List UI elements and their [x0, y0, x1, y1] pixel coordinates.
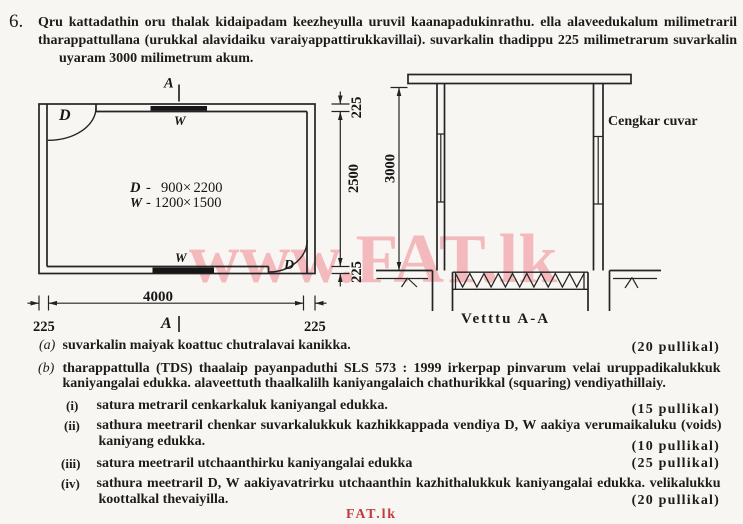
svg-text:W: W [175, 250, 188, 265]
svg-text:D: D [58, 107, 71, 124]
svg-text:A: A [163, 76, 174, 92]
svg-text:W: W [174, 113, 187, 128]
svg-text:225: 225 [349, 261, 365, 283]
svg-text:225: 225 [349, 97, 365, 119]
svg-text:W-1200×1500: W-1200×1500 [130, 195, 222, 211]
svg-text:D: D [283, 258, 294, 273]
svg-text:A: A [160, 315, 172, 332]
svg-text:2500: 2500 [346, 164, 362, 193]
svg-text:3000: 3000 [382, 154, 398, 183]
svg-text:225: 225 [304, 319, 326, 335]
svg-text:D-900×2200: D-900×2200 [129, 180, 223, 196]
svg-text:4000: 4000 [143, 289, 173, 305]
svg-text:225: 225 [33, 319, 55, 335]
